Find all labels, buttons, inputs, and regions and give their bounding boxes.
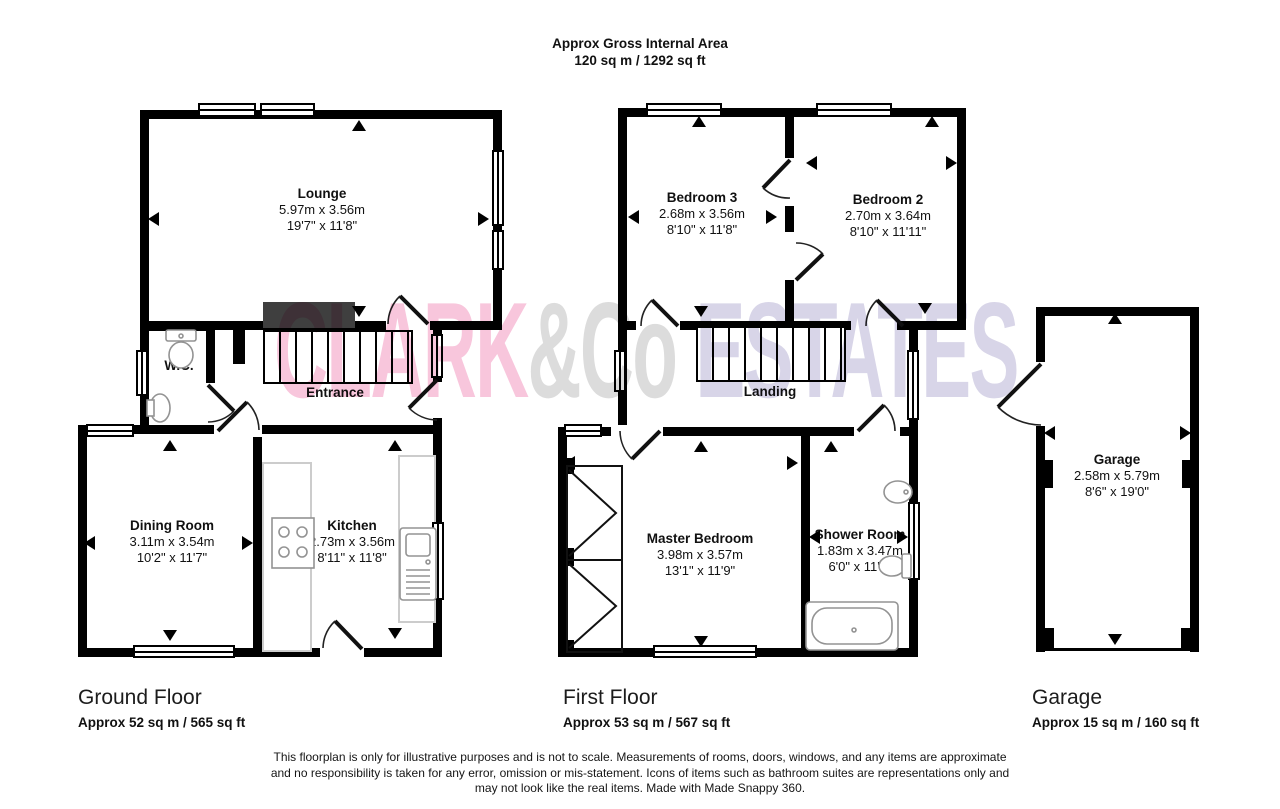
header-title: Approx Gross Internal Area bbox=[0, 35, 1280, 52]
wardrobe-wall-nub bbox=[558, 548, 574, 566]
hall-right-wall-nub bbox=[433, 418, 442, 428]
room-label-wc: W.C. bbox=[164, 358, 193, 374]
measure-arrow bbox=[628, 210, 639, 224]
disclaimer-line: This floorplan is only for illustrative … bbox=[0, 750, 1280, 766]
door-opening bbox=[611, 425, 663, 437]
garage-door-line bbox=[1038, 648, 1197, 651]
measure-arrow bbox=[1044, 426, 1055, 440]
measure-arrow bbox=[694, 636, 708, 647]
measure-arrow bbox=[564, 456, 575, 470]
room-label-bedroom2: Bedroom 2 2.70m x 3.64m 8'10" x 11'11" bbox=[845, 192, 931, 240]
wardrobe-wall-nub bbox=[558, 640, 574, 654]
window bbox=[614, 350, 626, 392]
disclaimer: This floorplan is only for illustrative … bbox=[0, 750, 1280, 797]
measure-arrow bbox=[352, 120, 366, 131]
measure-arrow bbox=[806, 156, 817, 170]
measure-arrow bbox=[787, 456, 798, 470]
room-label-bedroom3: Bedroom 3 2.68m x 3.56m 8'10" x 11'8" bbox=[659, 190, 745, 238]
door-icon bbox=[409, 380, 437, 420]
measure-arrow bbox=[766, 210, 777, 224]
wc-room-outline bbox=[140, 322, 215, 435]
window bbox=[816, 103, 892, 117]
door-opening bbox=[785, 232, 798, 280]
window bbox=[492, 230, 504, 270]
room-label-landing: Landing bbox=[744, 384, 797, 400]
hall-chimney-nub bbox=[233, 322, 245, 364]
room-label-shower: Shower Room 1.83m x 3.47m 6'0" x 11'5" bbox=[812, 527, 908, 575]
measure-arrow bbox=[274, 536, 285, 550]
measure-arrow bbox=[824, 636, 838, 647]
floorplan-page: Approx Gross Internal Area 120 sq m / 12… bbox=[0, 0, 1280, 809]
window bbox=[260, 103, 315, 117]
window bbox=[564, 424, 602, 437]
measure-arrow bbox=[824, 441, 838, 452]
room-label-lounge: Lounge 5.97m x 3.56m 19'7" x 11'8" bbox=[279, 186, 365, 234]
measure-arrow bbox=[694, 441, 708, 452]
stair-bulkhead bbox=[263, 302, 355, 328]
door-opening bbox=[851, 320, 897, 332]
kitchen-counter-left bbox=[262, 462, 312, 652]
garage-pillar bbox=[1036, 460, 1053, 488]
measure-arrow bbox=[163, 440, 177, 451]
staircase-ground bbox=[263, 330, 413, 384]
room-label-master: Master Bedroom 3.98m x 3.57m 13'1" x 11'… bbox=[647, 531, 754, 579]
door-opening bbox=[1034, 362, 1047, 426]
caption-first-floor: First Floor Approx 53 sq m / 567 sq ft bbox=[563, 686, 730, 730]
door-opening bbox=[206, 383, 215, 425]
measure-arrow bbox=[809, 530, 820, 544]
door-opening bbox=[214, 425, 262, 437]
measure-arrow bbox=[148, 212, 159, 226]
door-opening bbox=[636, 320, 680, 332]
room-label-dining: Dining Room 3.11m x 3.54m 10'2" x 11'7" bbox=[129, 518, 214, 566]
measure-arrow bbox=[388, 628, 402, 639]
measure-arrow bbox=[163, 630, 177, 641]
garage-corner-nub bbox=[1181, 628, 1197, 650]
staircase-landing bbox=[696, 326, 846, 382]
disclaimer-line: and no responsibility is taken for any e… bbox=[0, 766, 1280, 782]
disclaimer-line: may not look like the real items. Made w… bbox=[0, 781, 1280, 797]
measure-arrow bbox=[478, 212, 489, 226]
measure-arrow bbox=[388, 440, 402, 451]
window bbox=[908, 502, 920, 580]
door-opening bbox=[785, 158, 798, 206]
window bbox=[198, 103, 256, 117]
measure-arrow bbox=[352, 306, 366, 317]
window bbox=[431, 334, 443, 378]
window bbox=[136, 350, 148, 396]
caption-garage: Garage Approx 15 sq m / 160 sq ft bbox=[1032, 686, 1199, 730]
room-label-garage: Garage 2.58m x 5.79m 8'6" x 19'0" bbox=[1074, 452, 1160, 500]
measure-arrow bbox=[1108, 313, 1122, 324]
window bbox=[432, 522, 444, 600]
room-label-entrance: Entrance bbox=[306, 385, 364, 401]
garage-corner-nub bbox=[1038, 628, 1054, 650]
door-opening bbox=[320, 645, 364, 659]
measure-arrow bbox=[84, 536, 95, 550]
measure-arrow bbox=[1180, 426, 1191, 440]
room-label-kitchen: Kitchen 2.73m x 3.56m 8'11" x 11'8" bbox=[309, 518, 395, 566]
measure-arrow bbox=[918, 303, 932, 314]
window bbox=[646, 103, 722, 117]
caption-ground-floor: Ground Floor Approx 52 sq m / 565 sq ft bbox=[78, 686, 245, 730]
window bbox=[86, 424, 134, 437]
garage-pillar bbox=[1182, 460, 1199, 488]
measure-arrow bbox=[925, 116, 939, 127]
gross-internal-area-header: Approx Gross Internal Area 120 sq m / 12… bbox=[0, 35, 1280, 69]
door-opening bbox=[854, 425, 900, 437]
window bbox=[492, 150, 504, 226]
measure-arrow bbox=[1108, 634, 1122, 645]
measure-arrow bbox=[946, 156, 957, 170]
measure-arrow bbox=[897, 530, 908, 544]
measure-arrow bbox=[692, 116, 706, 127]
measure-arrow bbox=[694, 306, 708, 317]
header-subtitle: 120 sq m / 1292 sq ft bbox=[0, 52, 1280, 69]
measure-arrow bbox=[424, 536, 435, 550]
measure-arrow bbox=[242, 536, 253, 550]
window bbox=[133, 645, 235, 658]
window bbox=[907, 350, 919, 420]
